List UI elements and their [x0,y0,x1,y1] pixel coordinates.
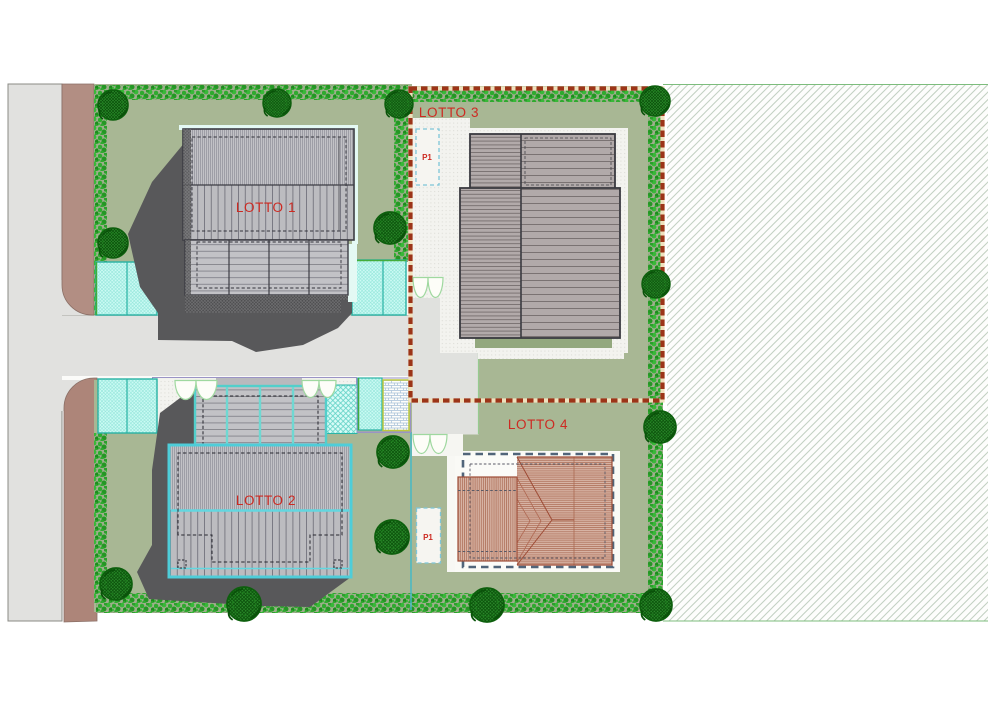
svg-text:P1: P1 [422,153,432,162]
svg-text:LOTTO 1: LOTTO 1 [236,200,296,215]
svg-text:LOTTO 2: LOTTO 2 [236,493,296,508]
svg-text:LOTTO 4: LOTTO 4 [508,417,568,432]
svg-text:LOTTO 3: LOTTO 3 [419,105,479,120]
svg-text:P1: P1 [423,533,433,542]
